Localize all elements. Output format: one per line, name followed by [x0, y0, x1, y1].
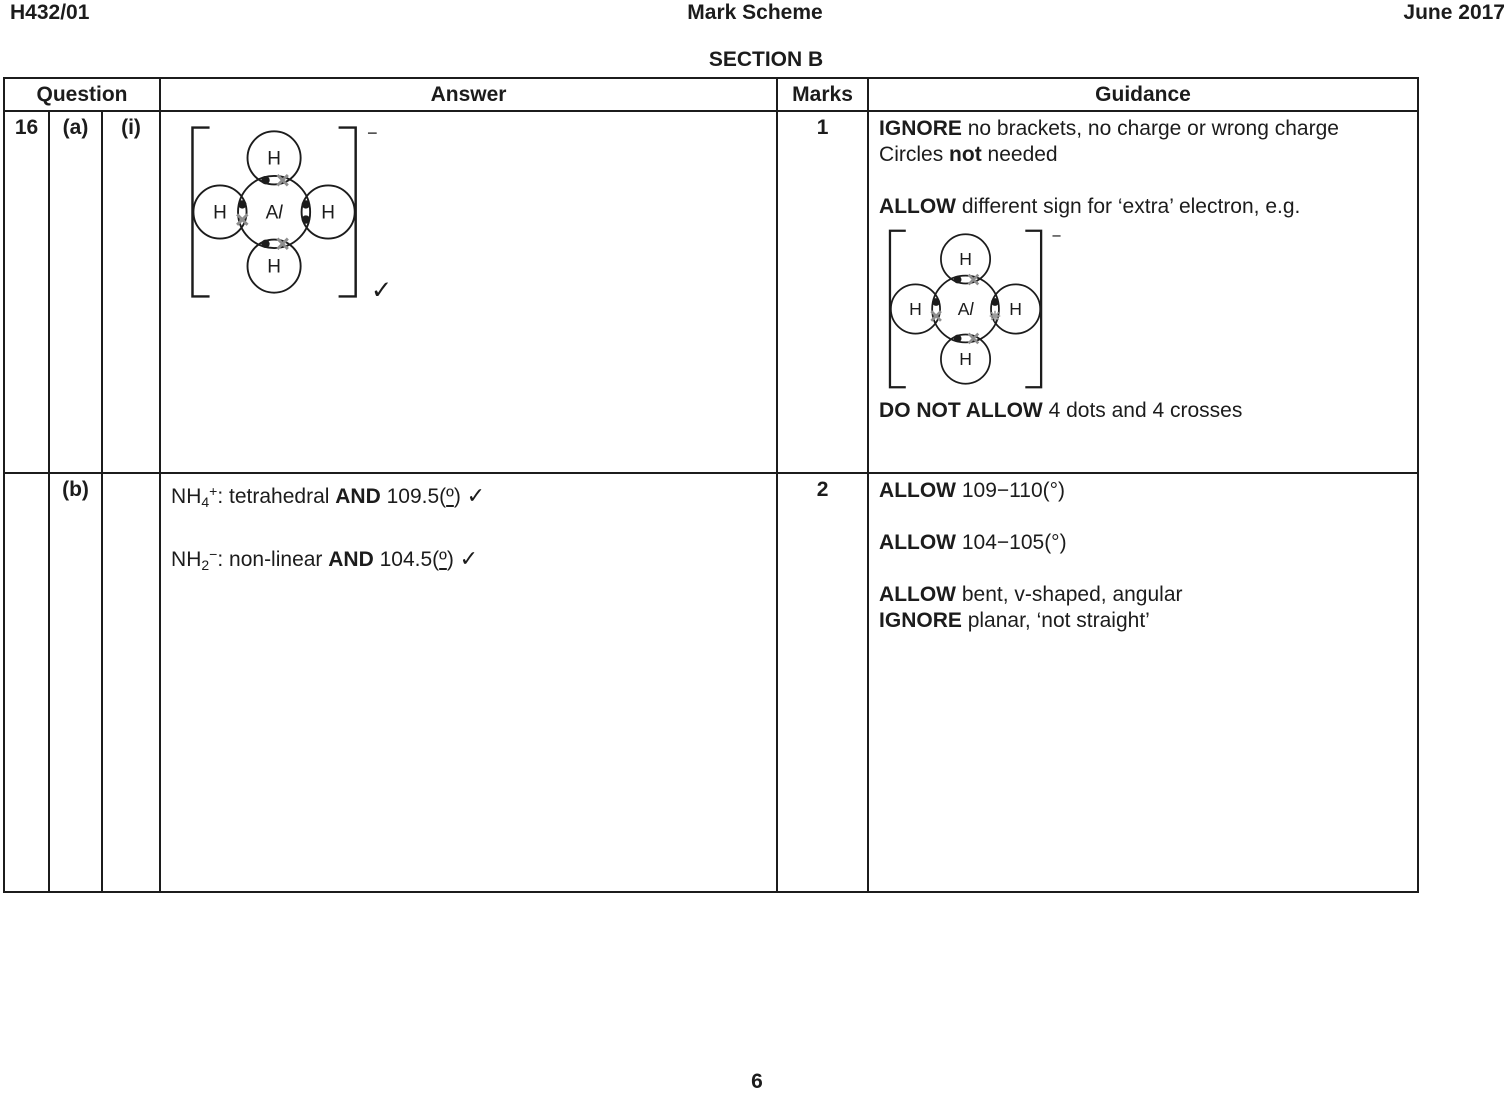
marks-cell-16b: 2	[777, 473, 868, 892]
text-line: Circles not needed	[879, 142, 1407, 168]
text-line: NH4+: tetrahedral AND 109.5(º) ✓	[171, 478, 766, 515]
text-line: ALLOW different sign for ‘extra’ electro…	[879, 194, 1407, 220]
section-heading: SECTION B	[709, 48, 823, 72]
text-line	[171, 515, 766, 541]
column-header-marks: Marks	[777, 78, 868, 111]
text-line: ALLOW 104−105(°)	[879, 530, 1407, 556]
text-line: NH2−: non-linear AND 104.5(º) ✓	[171, 541, 766, 578]
guidance-text-16b: ALLOW 109−110(°) ALLOW 104−105(°) ALLOW …	[879, 478, 1407, 634]
mark-scheme-table: Question Answer Marks Guidance 16 (a) (i…	[3, 77, 1419, 893]
page-number: 6	[751, 1070, 763, 1094]
document-code: H432/01	[10, 1, 89, 25]
svg-text:✓: ✓	[371, 276, 392, 304]
question-number-empty	[4, 473, 49, 892]
svg-text:−: −	[1052, 226, 1062, 245]
text-line	[879, 168, 1407, 194]
guidance-text-top: IGNORE no brackets, no charge or wrong c…	[879, 116, 1407, 220]
text-line: ALLOW 109−110(°)	[879, 478, 1407, 504]
column-header-guidance: Guidance	[868, 78, 1418, 111]
svg-text:Al: Al	[266, 203, 284, 224]
svg-text:H: H	[959, 349, 972, 369]
svg-text:H: H	[1009, 299, 1022, 319]
guidance-text-bottom: DO NOT ALLOW 4 dots and 4 crosses	[879, 398, 1407, 424]
svg-text:H: H	[213, 203, 227, 224]
svg-text:H: H	[909, 299, 922, 319]
guidance-cell-16ai: IGNORE no brackets, no charge or wrong c…	[868, 111, 1418, 473]
header-row: Question Answer Marks Guidance	[4, 78, 1418, 111]
document-date: June 2017	[1403, 1, 1505, 25]
answer-cell-16b: NH4+: tetrahedral AND 109.5(º) ✓ NH2−: n…	[160, 473, 777, 892]
svg-text:H: H	[267, 149, 281, 170]
table-row-16ai: 16 (a) (i) −HHHHAl✓ 1 IGNORE no brackets…	[4, 111, 1418, 473]
question-part-a: (a)	[49, 111, 102, 473]
table-row-16b: (b) NH4+: tetrahedral AND 109.5(º) ✓ NH2…	[4, 473, 1418, 892]
column-header-question: Question	[4, 78, 160, 111]
svg-text:H: H	[267, 257, 281, 278]
text-line	[879, 504, 1407, 530]
question-subpart-empty	[102, 473, 160, 892]
svg-text:−: −	[367, 123, 378, 143]
question-part-b: (b)	[49, 473, 102, 892]
text-line	[879, 556, 1407, 582]
dot-cross-diagram-alh4-alt-sign: −HHHHAl	[881, 222, 1407, 396]
answer-cell-16ai: −HHHHAl✓	[160, 111, 777, 473]
question-subpart-i: (i)	[102, 111, 160, 473]
text-line: IGNORE no brackets, no charge or wrong c…	[879, 116, 1407, 142]
column-header-answer: Answer	[160, 78, 777, 111]
marks-cell-16ai: 1	[777, 111, 868, 473]
question-number: 16	[4, 111, 49, 473]
answer-text-16b: NH4+: tetrahedral AND 109.5(º) ✓ NH2−: n…	[171, 478, 766, 578]
document-title: Mark Scheme	[687, 1, 822, 25]
svg-text:Al: Al	[958, 299, 975, 319]
svg-text:H: H	[959, 249, 972, 269]
text-line: DO NOT ALLOW 4 dots and 4 crosses	[879, 398, 1407, 424]
text-line: ALLOW bent, v-shaped, angular	[879, 582, 1407, 608]
svg-text:H: H	[321, 203, 335, 224]
text-line: IGNORE planar, ‘not straight’	[879, 608, 1407, 634]
dot-cross-diagram-alh4: −HHHHAl✓	[183, 118, 766, 306]
guidance-cell-16b: ALLOW 109−110(°) ALLOW 104−105(°) ALLOW …	[868, 473, 1418, 892]
